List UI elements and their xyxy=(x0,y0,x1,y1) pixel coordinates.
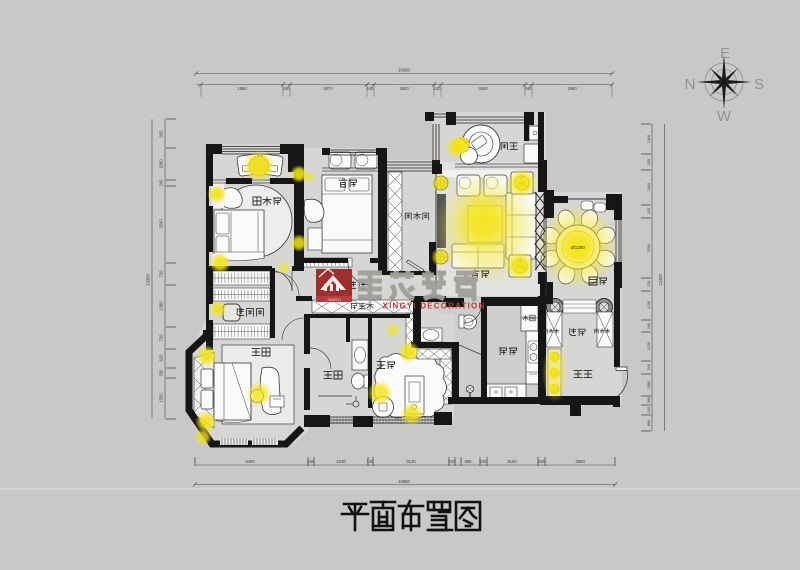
svg-text:620: 620 xyxy=(159,354,164,362)
svg-text:E: E xyxy=(720,45,730,62)
svg-text:S: S xyxy=(754,76,764,93)
svg-text:240: 240 xyxy=(525,86,533,91)
svg-text:120: 120 xyxy=(647,281,651,287)
svg-text:3120: 3120 xyxy=(406,459,416,464)
svg-text:960: 960 xyxy=(465,459,473,464)
svg-text:12400: 12400 xyxy=(658,274,663,286)
svg-text:16050: 16050 xyxy=(398,68,410,73)
svg-text:240: 240 xyxy=(647,159,651,165)
svg-text:240: 240 xyxy=(538,459,546,464)
svg-text:1100: 1100 xyxy=(647,301,651,309)
svg-text:1360: 1360 xyxy=(647,135,651,143)
svg-text:240: 240 xyxy=(647,407,651,413)
svg-text:1350: 1350 xyxy=(159,393,164,403)
svg-text:3200: 3200 xyxy=(647,244,651,252)
svg-text:120: 120 xyxy=(367,459,375,464)
svg-text:240: 240 xyxy=(367,86,375,91)
svg-text:1060: 1060 xyxy=(159,159,164,169)
svg-text:2540: 2540 xyxy=(159,219,164,229)
svg-text:120: 120 xyxy=(434,86,442,91)
svg-text:3070: 3070 xyxy=(323,86,333,91)
svg-text:330: 330 xyxy=(159,369,164,377)
svg-text:660: 660 xyxy=(647,420,651,426)
svg-text:2100: 2100 xyxy=(507,459,517,464)
svg-text:13350: 13350 xyxy=(146,274,151,286)
svg-text:1380: 1380 xyxy=(159,301,164,311)
svg-text:2230: 2230 xyxy=(336,459,346,464)
svg-text:720: 720 xyxy=(159,334,164,342)
svg-text:240: 240 xyxy=(647,364,651,370)
svg-text:3440: 3440 xyxy=(478,86,488,91)
svg-text:1800: 1800 xyxy=(399,86,409,91)
svg-text:2560: 2560 xyxy=(575,459,585,464)
svg-text:240: 240 xyxy=(159,179,164,187)
svg-text:1500: 1500 xyxy=(647,183,651,191)
svg-text:4400: 4400 xyxy=(245,459,255,464)
svg-text:1060: 1060 xyxy=(647,381,651,389)
svg-text:240: 240 xyxy=(647,208,651,214)
svg-text:XINGYI DECORATION: XINGYI DECORATION xyxy=(383,302,486,311)
svg-text:N: N xyxy=(685,76,696,93)
svg-text:950: 950 xyxy=(159,130,164,138)
svg-text:240: 240 xyxy=(283,86,291,91)
svg-text:240: 240 xyxy=(647,323,651,329)
svg-text:240: 240 xyxy=(449,459,457,464)
svg-text:1950: 1950 xyxy=(237,86,247,91)
svg-text:W: W xyxy=(717,108,732,125)
svg-text:Ø1300: Ø1300 xyxy=(571,245,585,250)
svg-text:240: 240 xyxy=(308,459,316,464)
svg-text:1100: 1100 xyxy=(647,342,651,350)
svg-text:240: 240 xyxy=(480,459,488,464)
svg-text:720: 720 xyxy=(159,270,164,278)
svg-text:16050: 16050 xyxy=(398,479,410,484)
svg-text:XINGYI: XINGYI xyxy=(327,297,341,302)
svg-text:360: 360 xyxy=(647,397,651,403)
svg-text:1950: 1950 xyxy=(567,86,577,91)
